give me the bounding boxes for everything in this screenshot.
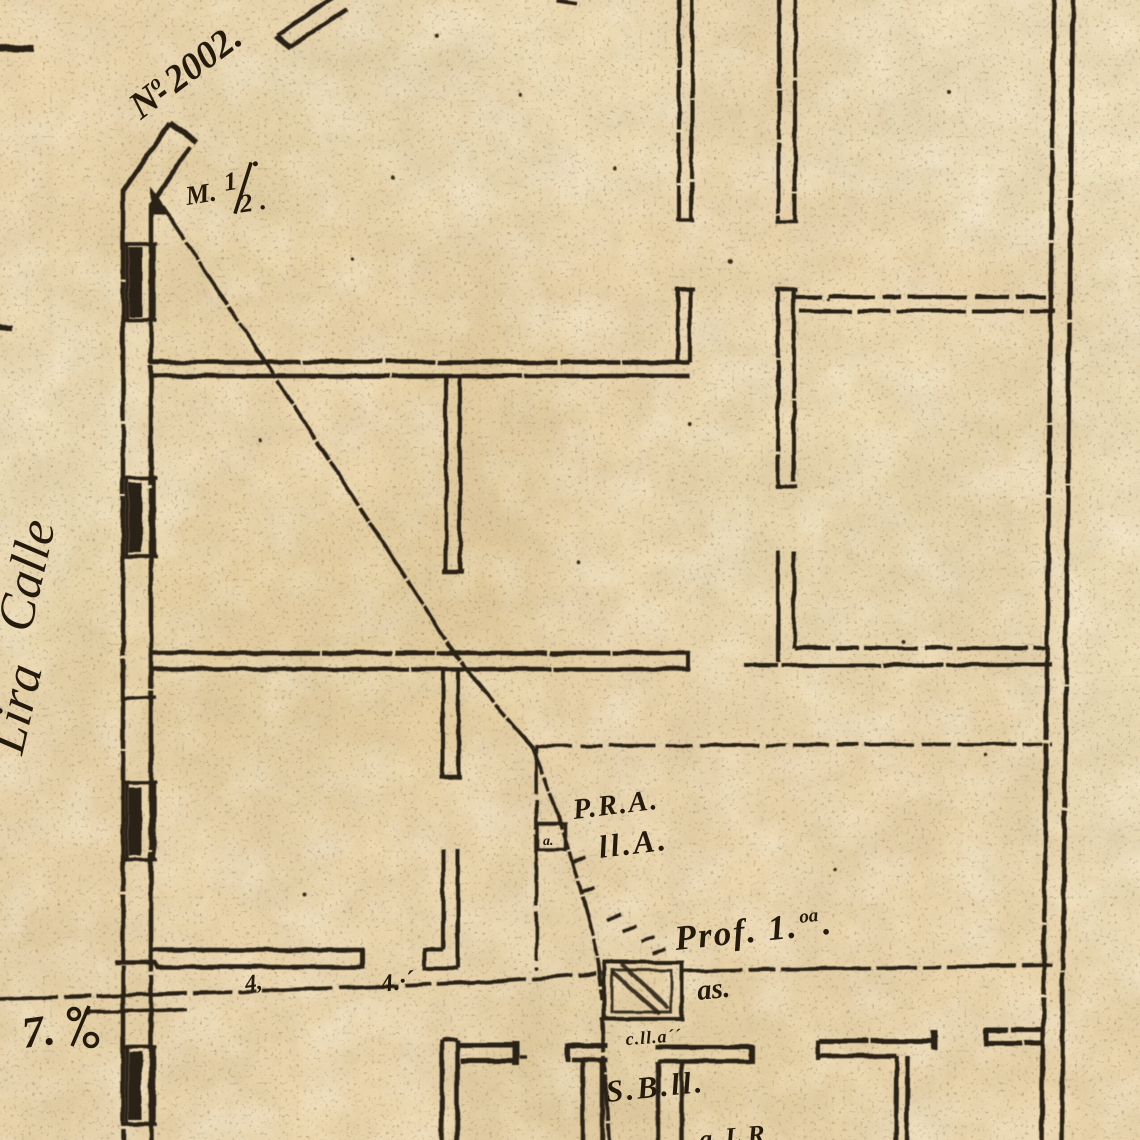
- svg-text:oa: oa: [798, 905, 820, 928]
- svg-text:a.: a.: [543, 834, 554, 849]
- svg-text:7.: 7.: [19, 1005, 58, 1058]
- svg-text:c.ll.a´´: c.ll.a´´: [625, 1025, 682, 1049]
- svg-text:4,: 4,: [242, 969, 264, 996]
- svg-text:M.: M.: [182, 176, 218, 211]
- svg-text:4.·´: 4.·´: [378, 966, 417, 998]
- svg-text:as.: as.: [695, 972, 731, 1007]
